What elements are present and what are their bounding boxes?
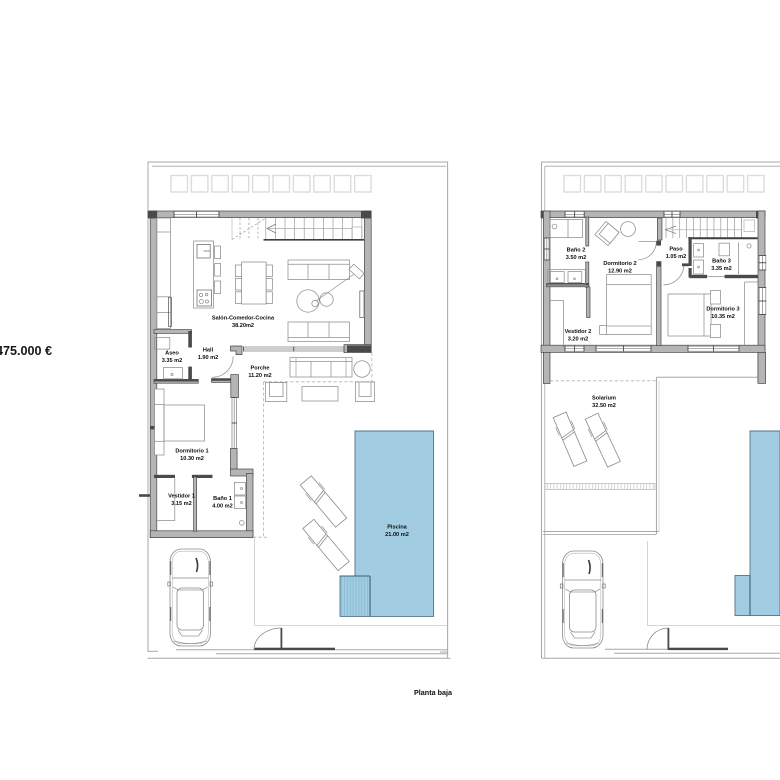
- svg-text:4.00 m2: 4.00 m2: [212, 504, 233, 510]
- svg-text:10.30 m2: 10.30 m2: [180, 456, 204, 462]
- svg-text:Vestidor 1: Vestidor 1: [168, 494, 195, 500]
- svg-text:475.000 €: 475.000 €: [0, 344, 52, 358]
- svg-text:1.90 m2: 1.90 m2: [198, 355, 219, 361]
- svg-text:Baño 3: Baño 3: [712, 259, 731, 265]
- svg-text:Vestidor 2: Vestidor 2: [565, 329, 592, 335]
- svg-text:11.20 m2: 11.20 m2: [248, 373, 271, 379]
- svg-text:Paso: Paso: [669, 247, 683, 253]
- svg-text:3.15 m2: 3.15 m2: [171, 501, 192, 507]
- svg-text:1.05 m2: 1.05 m2: [666, 254, 687, 260]
- svg-text:3.20 m2: 3.20 m2: [568, 337, 589, 343]
- svg-text:12.90 m2: 12.90 m2: [608, 269, 632, 275]
- svg-text:Baño 2: Baño 2: [567, 248, 586, 254]
- svg-text:Salón-Comedor-Cocina: Salón-Comedor-Cocina: [212, 316, 275, 322]
- svg-text:21.00 m2: 21.00 m2: [385, 532, 409, 538]
- svg-text:Porche: Porche: [251, 366, 270, 372]
- svg-text:Dormitorio 2: Dormitorio 2: [603, 261, 636, 267]
- svg-text:Piscina: Piscina: [387, 525, 407, 531]
- svg-text:Dormitorio 3: Dormitorio 3: [706, 307, 739, 313]
- svg-text:3.35 m2: 3.35 m2: [162, 358, 183, 364]
- svg-text:Hall: Hall: [203, 348, 214, 354]
- svg-text:38.20m2: 38.20m2: [232, 323, 254, 329]
- svg-text:3.35 m2: 3.35 m2: [711, 266, 732, 272]
- svg-text:Dormitorio 1: Dormitorio 1: [175, 449, 208, 455]
- svg-text:10.35 m2: 10.35 m2: [711, 314, 735, 320]
- svg-text:Solarium: Solarium: [592, 396, 616, 402]
- svg-text:3.50 m2: 3.50 m2: [566, 255, 587, 261]
- svg-text:Aseo: Aseo: [165, 351, 179, 357]
- svg-text:Baño 1: Baño 1: [213, 496, 232, 502]
- svg-text:32.50 m2: 32.50 m2: [592, 403, 616, 409]
- svg-text:Planta baja: Planta baja: [414, 688, 453, 697]
